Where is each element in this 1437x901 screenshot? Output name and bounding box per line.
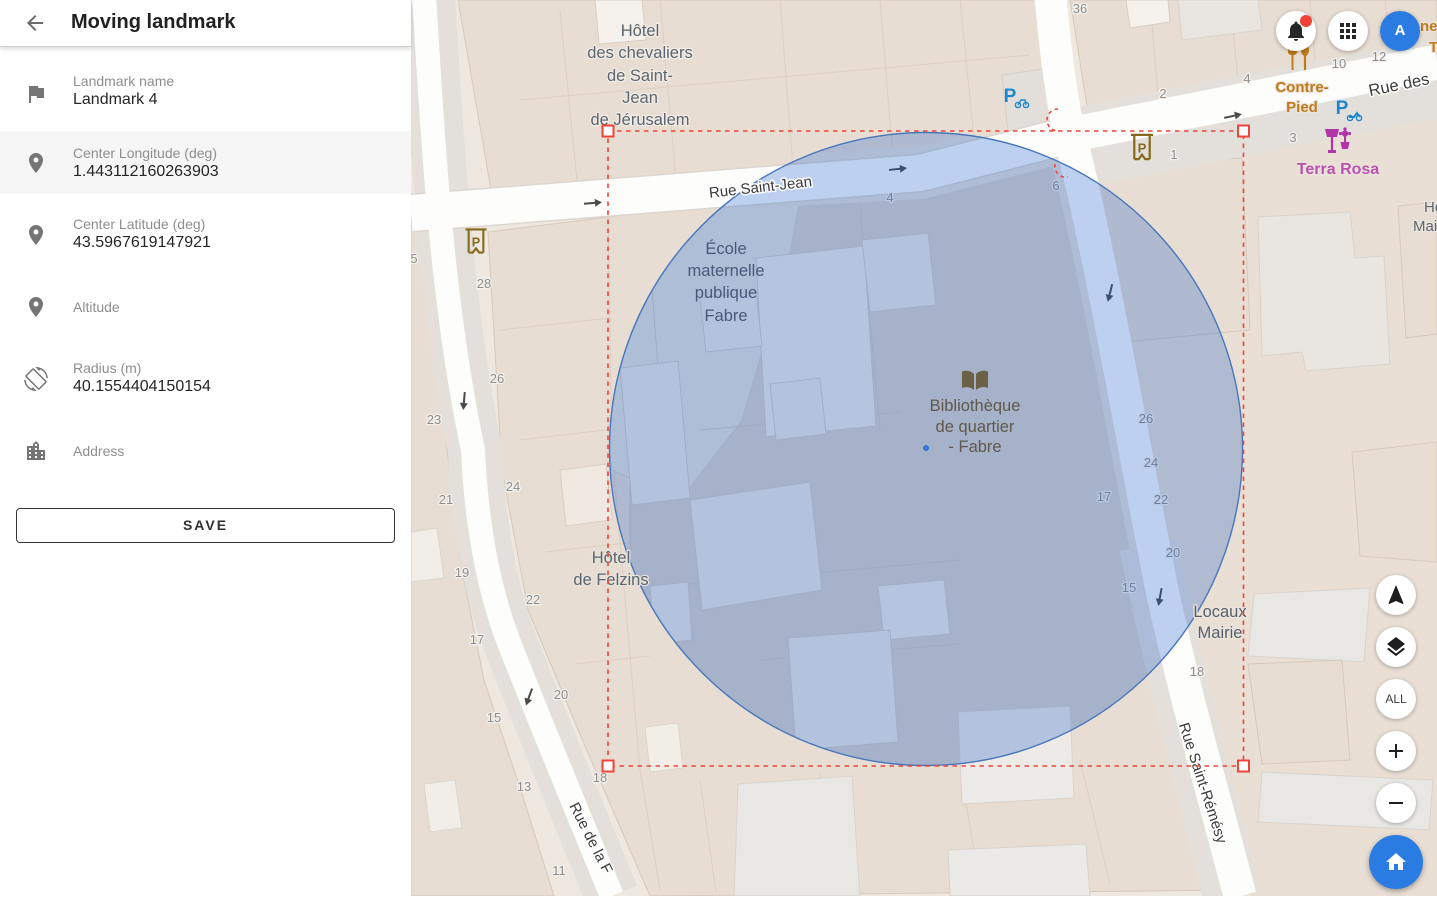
svg-text:5: 5 (411, 251, 418, 266)
svg-text:12: 12 (1372, 49, 1386, 64)
svg-text:P: P (1138, 141, 1147, 156)
svg-text:Locaux: Locaux (1193, 603, 1247, 621)
svg-text:1: 1 (1170, 147, 1177, 162)
svg-text:23: 23 (427, 412, 441, 427)
svg-text:Hôtel: Hôtel (592, 549, 631, 567)
svg-text:Hô: Hô (1424, 199, 1437, 216)
svg-text:19: 19 (455, 565, 469, 580)
svg-text:Mai: Mai (1413, 218, 1437, 235)
svg-text:21: 21 (439, 492, 453, 507)
svg-text:P: P (472, 235, 480, 249)
svg-text:École: École (705, 239, 746, 258)
svg-text:10: 10 (1332, 56, 1346, 71)
svg-text:publique: publique (695, 284, 757, 302)
svg-text:17: 17 (470, 632, 484, 647)
svg-text:de Felzins: de Felzins (573, 571, 648, 589)
svg-text:13: 13 (517, 779, 531, 794)
svg-text:de Saint-: de Saint- (607, 67, 673, 85)
svg-text:36: 36 (1073, 1, 1087, 16)
svg-text:Terra Rosa: Terra Rosa (1297, 161, 1380, 178)
svg-text:20: 20 (554, 687, 568, 702)
svg-text:Jean: Jean (622, 89, 658, 107)
svg-text:2: 2 (1159, 86, 1166, 101)
svg-text:26: 26 (490, 371, 504, 386)
svg-text:28: 28 (477, 276, 491, 291)
svg-text:Contre-: Contre- (1275, 79, 1328, 96)
svg-text:11: 11 (552, 863, 566, 878)
svg-text:de quartier: de quartier (936, 418, 1015, 436)
svg-text:3: 3 (1289, 130, 1296, 145)
svg-text:ne: ne (1420, 18, 1437, 35)
svg-text:Pied: Pied (1286, 99, 1318, 116)
svg-text:Fabre: Fabre (704, 307, 747, 325)
svg-text:T: T (1429, 39, 1437, 56)
svg-text:18: 18 (1190, 664, 1204, 679)
svg-text:15: 15 (487, 710, 501, 725)
svg-text:Bibliothèque: Bibliothèque (930, 397, 1021, 415)
svg-text:maternelle: maternelle (687, 262, 764, 280)
svg-text:Hôtel: Hôtel (621, 22, 660, 40)
svg-text:- Fabre: - Fabre (948, 438, 1001, 456)
svg-text:P: P (1336, 98, 1349, 119)
svg-text:P: P (1004, 86, 1017, 107)
svg-text:4: 4 (1243, 71, 1250, 86)
svg-text:24: 24 (506, 479, 520, 494)
svg-text:des chevaliers: des chevaliers (587, 44, 692, 62)
svg-text:Mairie: Mairie (1198, 624, 1243, 642)
svg-text:22: 22 (526, 592, 540, 607)
